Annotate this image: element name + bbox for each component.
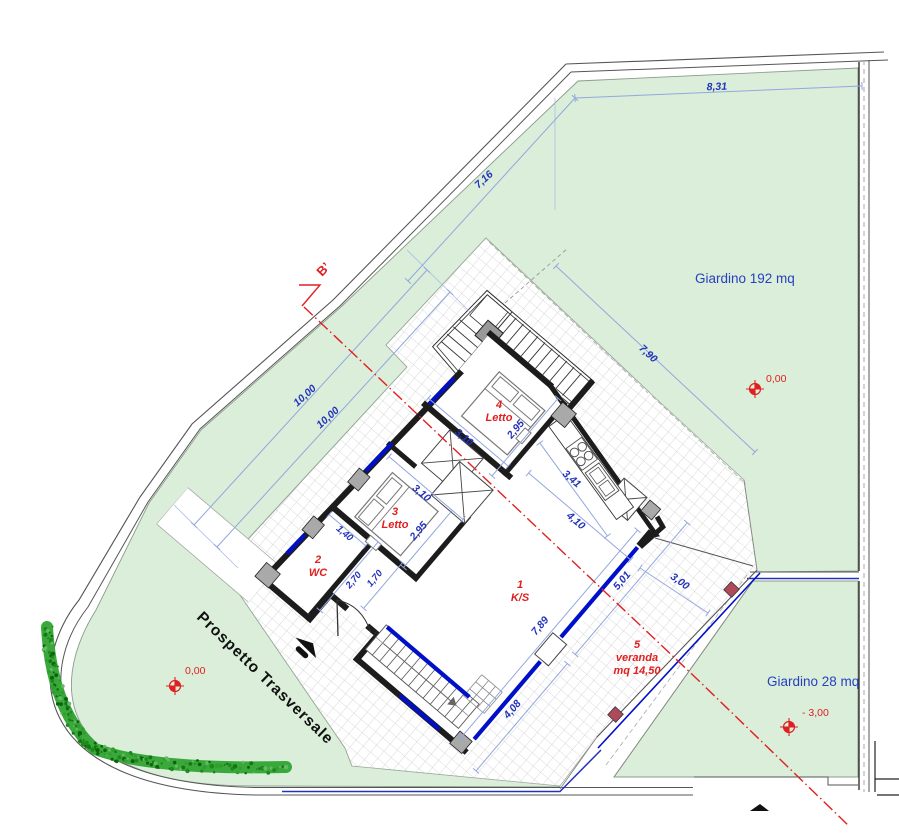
svg-text:5: 5 — [634, 639, 641, 651]
svg-text:Giardino 192 mq: Giardino 192 mq — [695, 271, 795, 286]
svg-text:Letto: Letto — [486, 412, 513, 424]
svg-text:- 3,00: - 3,00 — [802, 707, 829, 719]
svg-text:0,00: 0,00 — [766, 373, 787, 385]
svg-text:1: 1 — [517, 579, 523, 591]
svg-text:Giardino 28 mq: Giardino 28 mq — [767, 674, 859, 689]
svg-text:8,31: 8,31 — [706, 81, 727, 94]
svg-text:WC: WC — [309, 567, 328, 579]
svg-text:mq 14,50: mq 14,50 — [613, 665, 661, 677]
svg-text:2: 2 — [314, 554, 321, 566]
svg-text:3: 3 — [392, 506, 398, 518]
svg-text:Letto: Letto — [382, 519, 409, 531]
svg-text:4: 4 — [495, 399, 502, 411]
svg-text:veranda: veranda — [616, 652, 658, 664]
svg-text:K/S: K/S — [511, 592, 530, 604]
svg-text:0,00: 0,00 — [185, 665, 206, 677]
